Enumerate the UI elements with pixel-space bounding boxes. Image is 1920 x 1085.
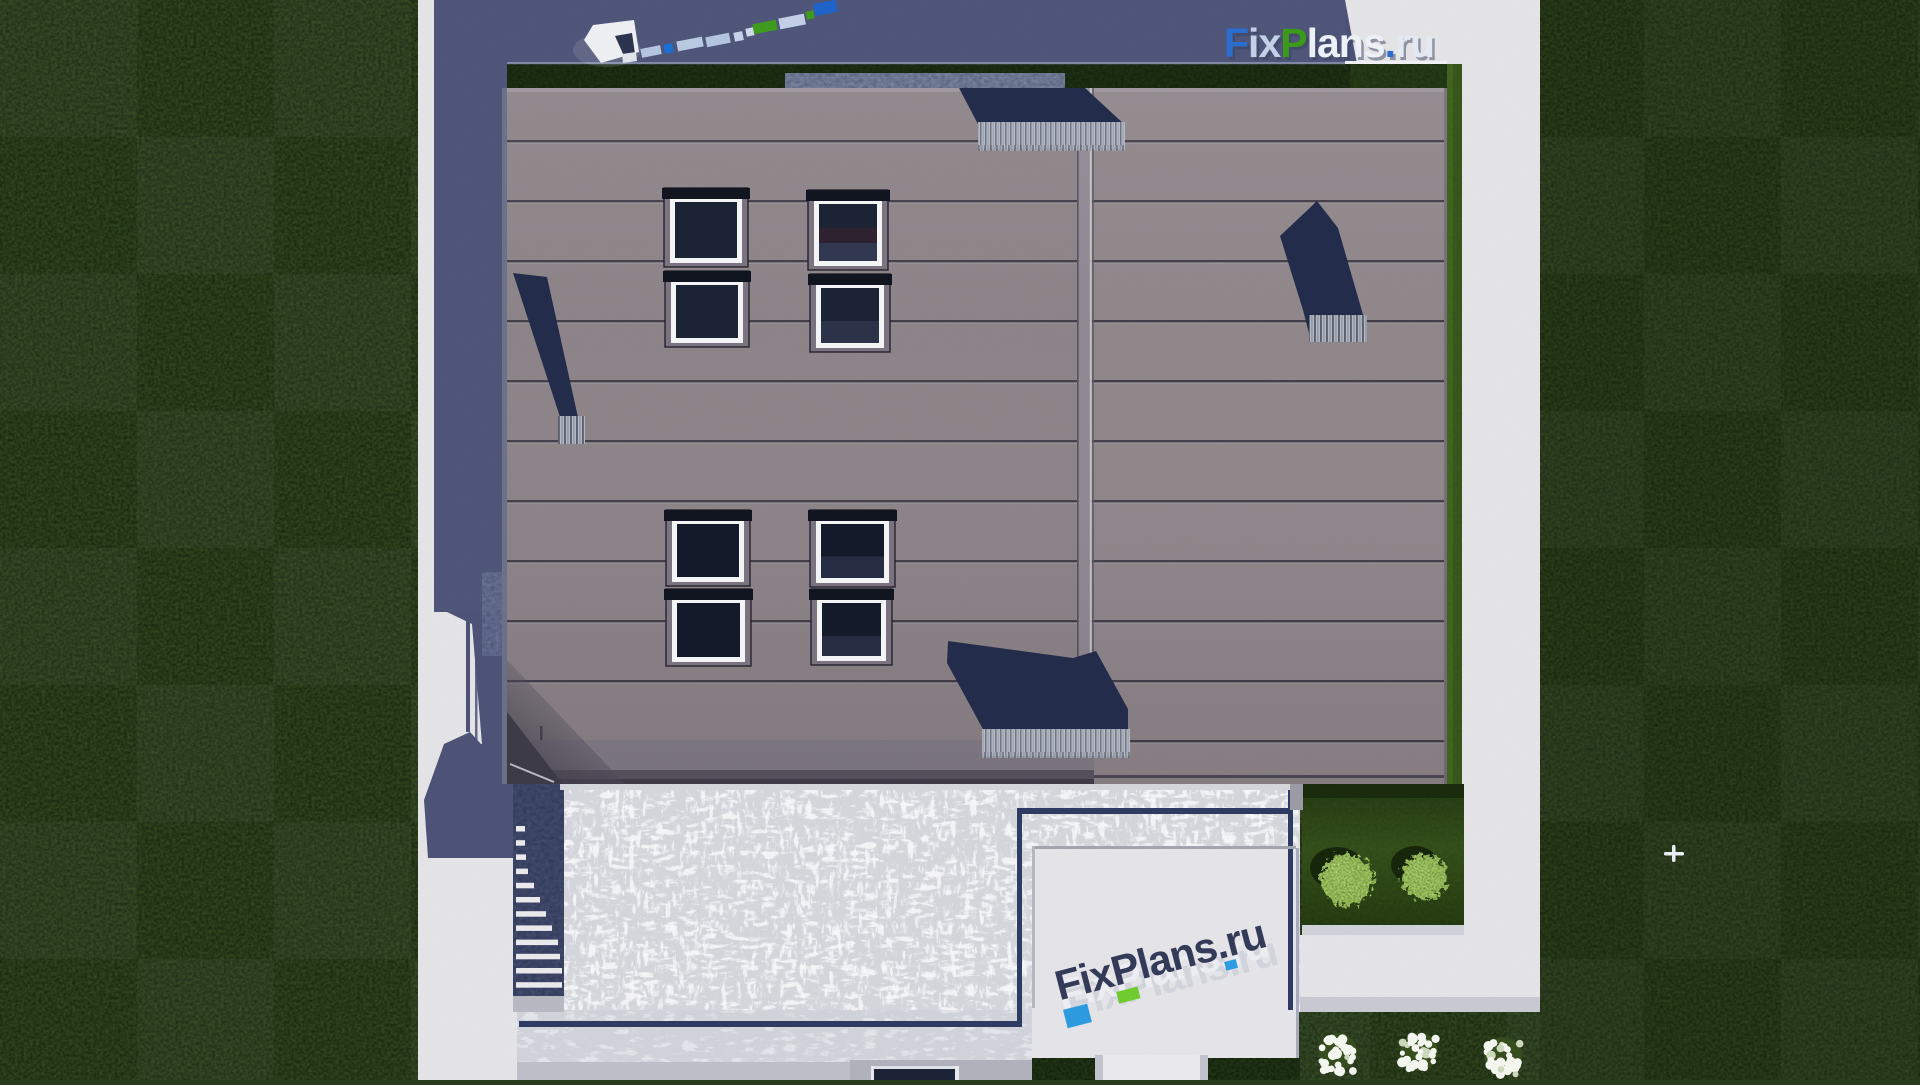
svg-text:FixPlans.ru: FixPlans.ru bbox=[1224, 20, 1434, 66]
